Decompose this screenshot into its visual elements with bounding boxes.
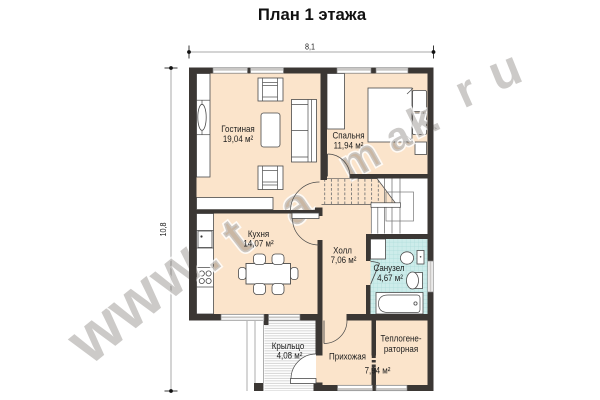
- svg-text:4,67 м²: 4,67 м²: [377, 272, 403, 283]
- svg-text:7,94 м²: 7,94 м²: [365, 365, 391, 376]
- svg-text:раторная: раторная: [384, 343, 419, 354]
- svg-text:Гостиная: Гостиная: [221, 123, 255, 134]
- svg-text:Прихожая: Прихожая: [329, 351, 366, 362]
- svg-text:Теплогене-: Теплогене-: [380, 333, 421, 344]
- svg-text:11,94 м²: 11,94 м²: [334, 140, 364, 151]
- svg-text:19,04 м²: 19,04 м²: [223, 134, 253, 145]
- svg-text:7,06 м²: 7,06 м²: [331, 254, 357, 265]
- svg-text:14,07 м²: 14,07 м²: [243, 238, 273, 249]
- svg-text:4,08 м²: 4,08 м²: [277, 350, 303, 361]
- svg-text:План 1 этажа: План 1 этажа: [258, 5, 367, 24]
- svg-text:8,1: 8,1: [305, 42, 315, 52]
